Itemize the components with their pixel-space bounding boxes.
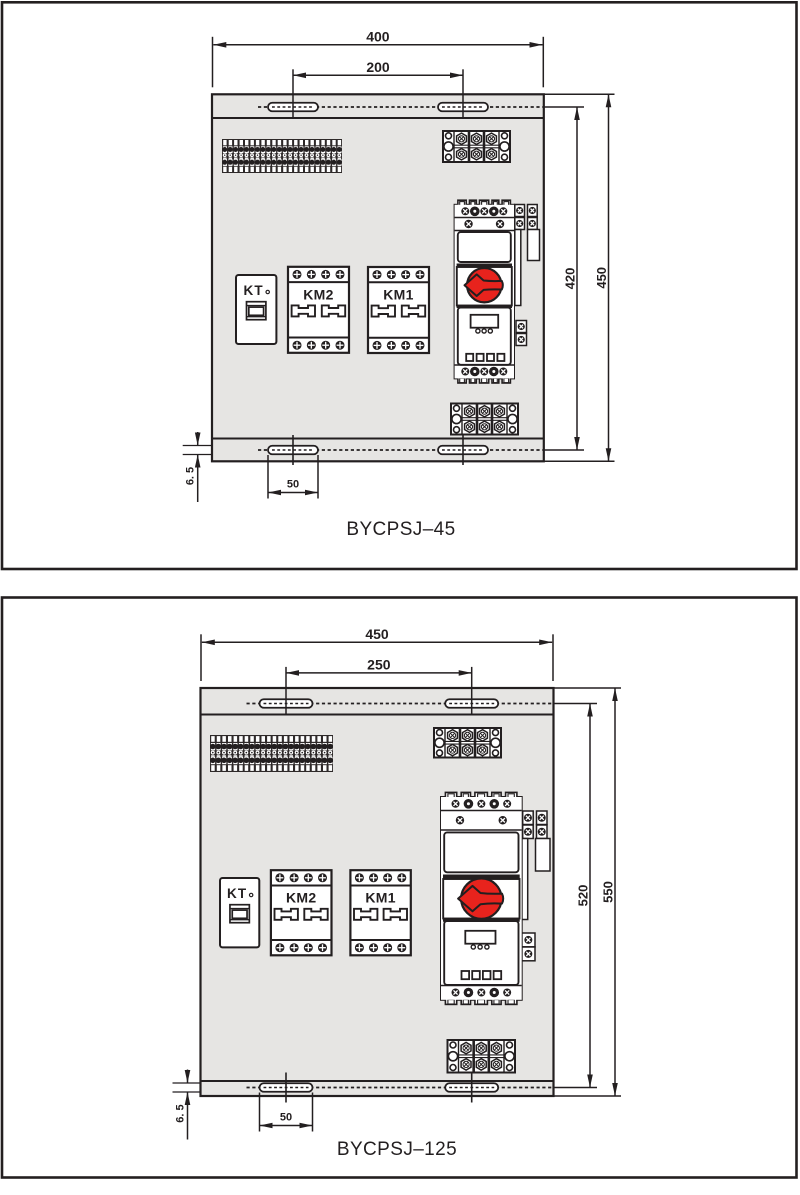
svg-text:BYCPSJ–45: BYCPSJ–45 [346, 519, 455, 540]
svg-text:KT: KT [243, 283, 263, 298]
svg-text:450: 450 [365, 626, 389, 642]
svg-text:BYCPSJ–125: BYCPSJ–125 [337, 1139, 457, 1160]
svg-text:KT: KT [227, 886, 247, 901]
svg-text:KM1: KM1 [365, 890, 395, 906]
svg-text:6. 5: 6. 5 [175, 1104, 187, 1122]
svg-text:400: 400 [366, 28, 390, 44]
svg-text:50: 50 [280, 1112, 292, 1124]
svg-text:420: 420 [563, 268, 578, 290]
svg-text:450: 450 [594, 267, 609, 289]
svg-text:550: 550 [601, 881, 616, 903]
svg-text:KM2: KM2 [303, 286, 333, 302]
svg-text:50: 50 [287, 479, 299, 491]
svg-text:6. 5: 6. 5 [185, 467, 197, 485]
svg-text:250: 250 [367, 656, 391, 672]
svg-text:520: 520 [576, 885, 591, 907]
svg-text:KM1: KM1 [383, 287, 413, 303]
svg-text:200: 200 [366, 59, 390, 75]
svg-text:KM2: KM2 [286, 890, 316, 906]
